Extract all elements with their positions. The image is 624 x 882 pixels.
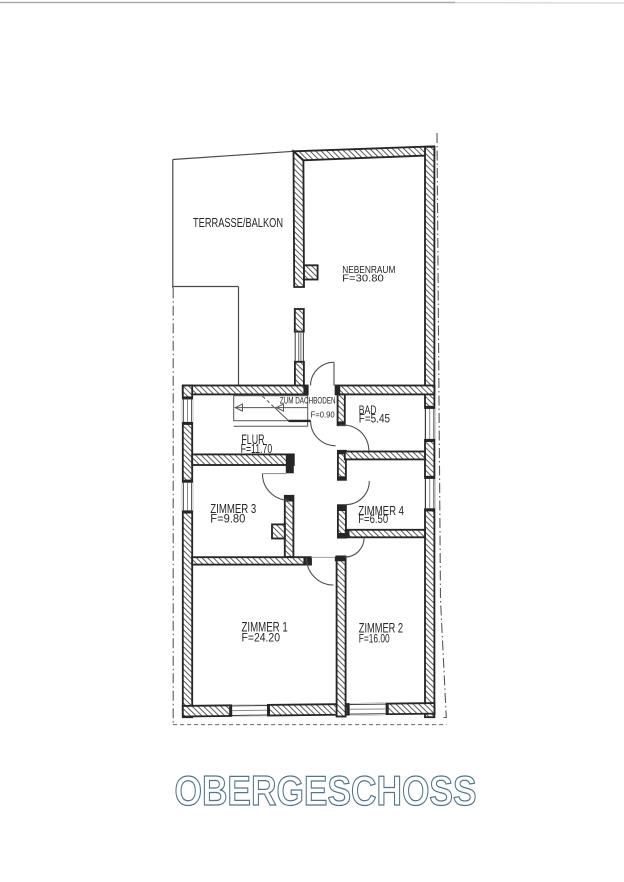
- svg-text:ZUM DACHBODEN: ZUM DACHBODEN: [280, 395, 336, 405]
- svg-text:F=5.45: F=5.45: [359, 413, 390, 425]
- svg-text:F=11.70: F=11.70: [241, 442, 273, 456]
- svg-text:F=30.80: F=30.80: [342, 274, 384, 285]
- svg-text:F=6.50: F=6.50: [358, 512, 388, 526]
- svg-text:F=9.80: F=9.80: [210, 511, 245, 525]
- svg-text:F=0.90: F=0.90: [311, 409, 335, 419]
- svg-text:F=16.00: F=16.00: [359, 631, 390, 645]
- svg-text:TERRASSE/BALKON: TERRASSE/BALKON: [193, 215, 283, 230]
- svg-text:F=24.20: F=24.20: [242, 631, 281, 645]
- svg-text:OBERGESCHOSS: OBERGESCHOSS: [175, 767, 477, 814]
